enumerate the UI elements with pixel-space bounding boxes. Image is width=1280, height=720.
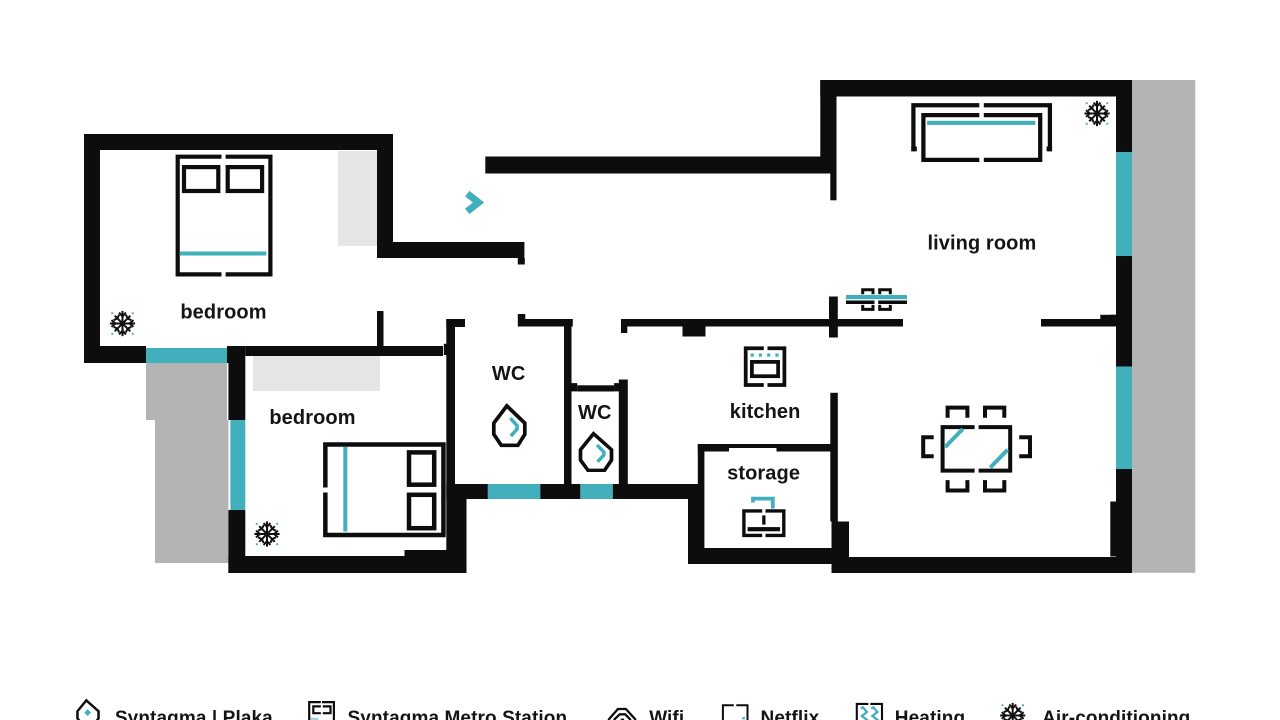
svg-text:WC: WC bbox=[492, 363, 526, 385]
svg-text:kitchen: kitchen bbox=[730, 401, 801, 423]
svg-text:Heating: Heating bbox=[895, 708, 965, 720]
svg-text:Wifi: Wifi bbox=[649, 708, 684, 720]
svg-text:Syntagma Metro Station: Syntagma Metro Station bbox=[348, 708, 568, 720]
svg-text:storage: storage bbox=[727, 462, 800, 484]
svg-text:living room: living room bbox=[927, 233, 1036, 255]
svg-text:Syntagma | Plaka: Syntagma | Plaka bbox=[115, 708, 273, 720]
svg-text:Netflix: Netflix bbox=[761, 708, 820, 720]
svg-text:bedroom: bedroom bbox=[269, 407, 355, 429]
svg-text:WC: WC bbox=[578, 402, 612, 424]
svg-text:bedroom: bedroom bbox=[180, 301, 266, 323]
svg-text:Air-conditioning: Air-conditioning bbox=[1042, 708, 1190, 720]
